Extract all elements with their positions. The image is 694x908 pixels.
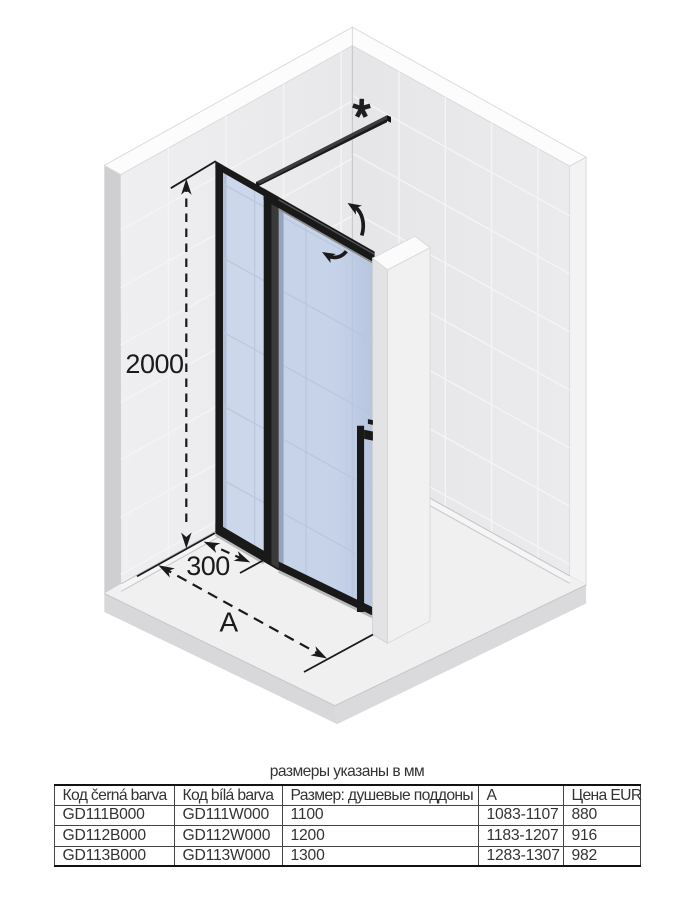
svg-text:2000: 2000 bbox=[125, 349, 183, 379]
svg-text:300: 300 bbox=[186, 551, 230, 581]
svg-text:A: A bbox=[219, 607, 238, 638]
